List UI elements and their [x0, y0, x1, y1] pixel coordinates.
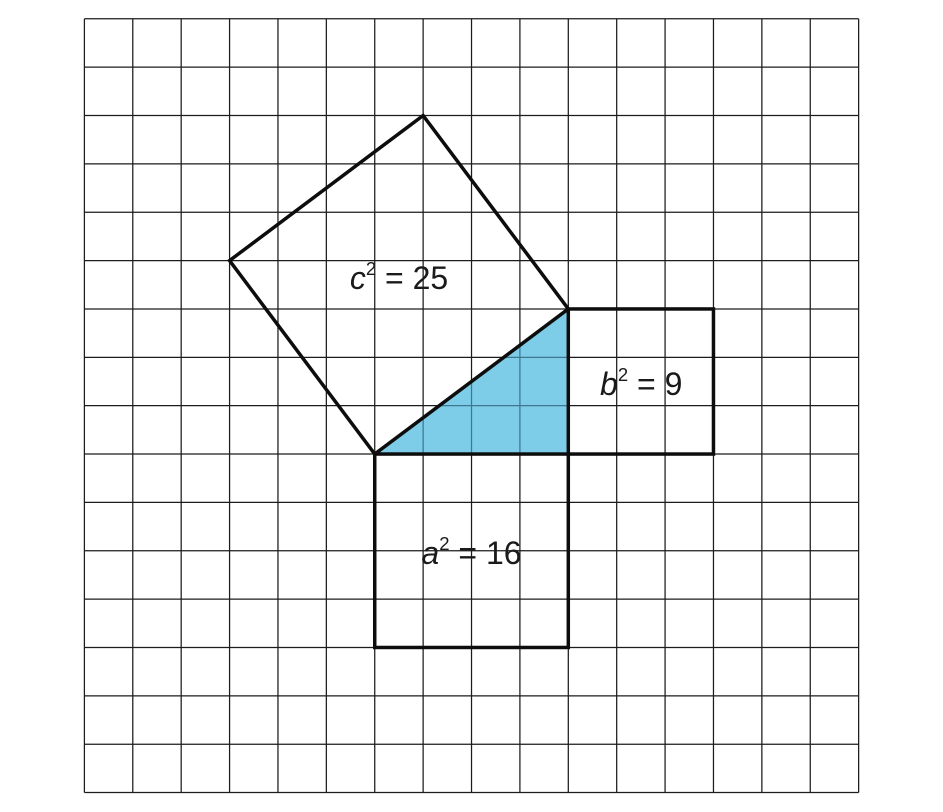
svg-text:a2 = 16: a2 = 16 [421, 533, 521, 571]
svg-text:b2 = 9: b2 = 9 [600, 364, 682, 402]
svg-text:c2 = 25: c2 = 25 [350, 258, 448, 296]
